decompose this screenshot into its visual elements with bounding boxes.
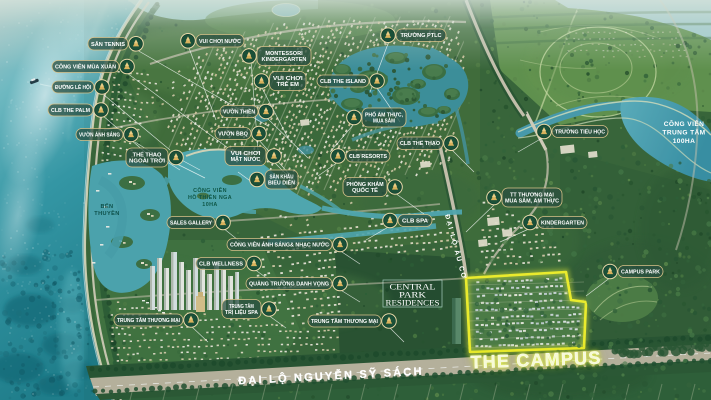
- svg-text:TT THƯƠNG MẠI: TT THƯƠNG MẠI: [510, 192, 554, 198]
- svg-text:KINDERGARTEN: KINDERGARTEN: [541, 221, 584, 227]
- svg-text:TRUNG TÂM THƯƠNG MẠI: TRUNG TÂM THƯƠNG MẠI: [311, 318, 378, 325]
- svg-text:KINDERGARTEN: KINDERGARTEN: [262, 57, 307, 63]
- svg-text:VUI CHƠI: VUI CHƠI: [231, 151, 261, 157]
- svg-text:SÂN KHẤU: SÂN KHẤU: [270, 173, 294, 180]
- svg-text:THUYỀN: THUYỀN: [94, 210, 119, 217]
- svg-text:CÔNG VIÊN: CÔNG VIÊN: [664, 119, 705, 128]
- svg-text:TRUNG TÂM THƯƠNG MẠI: TRUNG TÂM THƯƠNG MẠI: [117, 317, 180, 324]
- svg-text:10HA: 10HA: [202, 202, 217, 208]
- svg-text:CÔNG VIÊN ÁNH SÁNG& NHẠC NƯỚC: CÔNG VIÊN ÁNH SÁNG& NHẠC NƯỚC: [230, 241, 329, 249]
- svg-text:CLB RESORTS: CLB RESORTS: [349, 154, 387, 160]
- svg-text:MUA SẮM, ẨM THỰC: MUA SẮM, ẨM THỰC: [505, 197, 559, 205]
- svg-text:TRƯỜNG PTLC: TRƯỜNG PTLC: [400, 31, 441, 39]
- svg-text:PHỐ ẨM THỰC,: PHỐ ẨM THỰC,: [365, 111, 403, 118]
- svg-text:HỒ THIÊN NGA: HỒ THIÊN NGA: [188, 193, 232, 201]
- svg-text:MUA SẮM: MUA SẮM: [373, 117, 395, 125]
- svg-text:CLB THỂ THAO: CLB THỂ THAO: [400, 140, 441, 147]
- svg-text:VUI CHƠI: VUI CHƠI: [273, 76, 303, 82]
- svg-text:TRẺ EM: TRẺ EM: [277, 81, 300, 88]
- svg-text:SALES GALLERY: SALES GALLERY: [170, 221, 212, 227]
- svg-text:QUỐC TẾ: QUỐC TẾ: [352, 187, 378, 194]
- svg-text:RESIDENCES: RESIDENCES: [386, 299, 440, 308]
- svg-text:BẾN: BẾN: [100, 203, 113, 210]
- svg-text:VUI CHƠI NƯỚC: VUI CHƠI NƯỚC: [199, 37, 241, 45]
- svg-text:TRUNG TÂM: TRUNG TÂM: [662, 128, 705, 137]
- svg-text:VƯỜN THIỀN: VƯỜN THIỀN: [223, 108, 255, 116]
- svg-text:100HA: 100HA: [673, 138, 696, 145]
- svg-text:NGOÀI TRỜI: NGOÀI TRỜI: [129, 157, 165, 165]
- svg-text:PHÒNG KHÁM: PHÒNG KHÁM: [346, 180, 384, 188]
- svg-text:CÔNG VIÊN: CÔNG VIÊN: [193, 186, 227, 194]
- svg-text:BIỂU DIỄN: BIỂU DIỄN: [268, 180, 295, 187]
- svg-text:TRƯỜNG TIỂU HỌC: TRƯỜNG TIỂU HỌC: [555, 128, 605, 136]
- svg-text:CAMPUS PARK: CAMPUS PARK: [621, 270, 661, 276]
- svg-text:CLB WELLNESS: CLB WELLNESS: [199, 262, 243, 268]
- svg-text:CLB THE PALM: CLB THE PALM: [51, 108, 90, 114]
- svg-text:VƯỜN BBQ: VƯỜN BBQ: [218, 130, 248, 138]
- svg-text:TRUNG TÂM: TRUNG TÂM: [229, 303, 254, 310]
- svg-text:SÂN TENNIS: SÂN TENNIS: [91, 41, 125, 48]
- svg-text:THỂ THAO: THỂ THAO: [133, 151, 162, 158]
- svg-text:MẶT NƯỚC: MẶT NƯỚC: [231, 155, 261, 163]
- svg-text:CLB THE ISLAND: CLB THE ISLAND: [320, 79, 366, 85]
- svg-text:CÔNG VIÊN MÙA XUÂN: CÔNG VIÊN MÙA XUÂN: [55, 63, 116, 71]
- svg-text:CLB SPA: CLB SPA: [402, 219, 428, 225]
- svg-text:TRỊ LIỆU SPA: TRỊ LIỆU SPA: [225, 308, 258, 316]
- svg-text:VƯỜN ÁNH SÁNG: VƯỜN ÁNH SÁNG: [79, 131, 120, 139]
- svg-text:MONTESSORI: MONTESSORI: [265, 51, 303, 57]
- svg-text:QUẢNG TRƯỜNG DANH VỌNG: QUẢNG TRƯỜNG DANH VỌNG: [249, 280, 330, 288]
- svg-text:ĐƯỜNG LỄ HỘI: ĐƯỜNG LỄ HỘI: [55, 83, 91, 91]
